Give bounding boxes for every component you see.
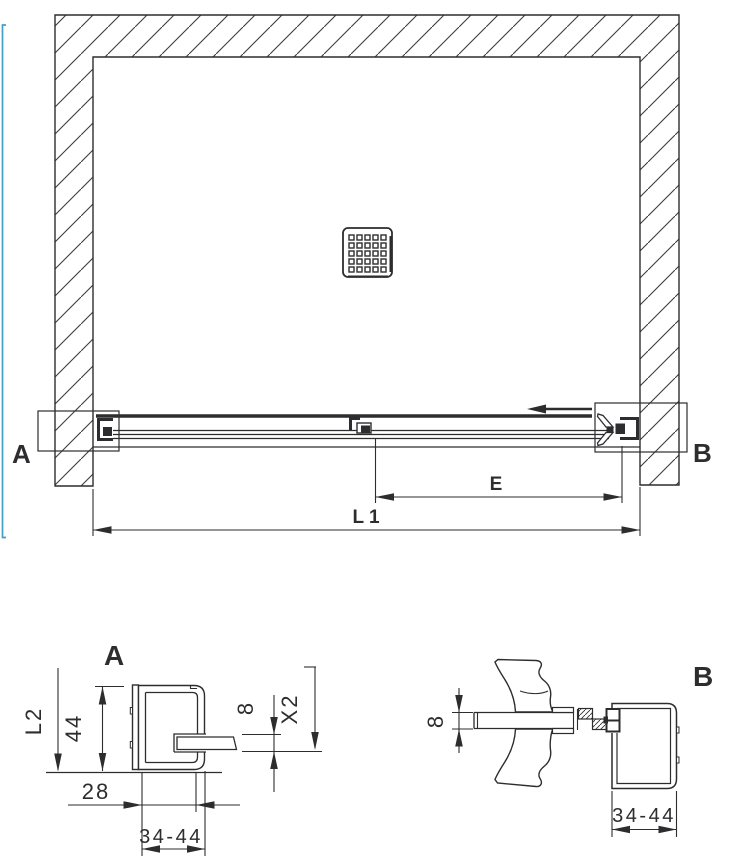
dim-l1-label: L 1 — [352, 507, 380, 528]
dim-x2-label: X2 — [277, 694, 302, 725]
wall-profile-right — [616, 419, 638, 439]
page-frame-fragment — [3, 25, 7, 538]
detail-a-title: A — [104, 640, 124, 671]
drain-holes — [349, 235, 386, 272]
dimension-e: E — [376, 438, 623, 503]
dim-8a-label: 8 — [233, 701, 258, 715]
dimension-l1: L 1 — [93, 487, 640, 536]
dim-28-label: 28 — [82, 779, 110, 804]
dim-e-label: E — [490, 474, 503, 495]
door-knob-plan — [598, 414, 614, 446]
detail-b-title: B — [693, 661, 713, 692]
dim-44-label: 44 — [61, 714, 86, 742]
dimension-44: 44 — [61, 687, 124, 772]
detail-b: B — [423, 660, 713, 838]
dimension-34-44-a: 34-44 — [139, 826, 205, 853]
detail-a-profile — [130, 685, 236, 770]
dimension-x2: X2 — [277, 667, 319, 750]
magnet-seal-strip — [578, 709, 607, 731]
dim-3444a-label: 34-44 — [139, 826, 203, 848]
technical-drawing-page: A B E L 1 A — [0, 0, 729, 866]
wall-profile-left — [99, 420, 114, 440]
detail-a: A L2 44 — [21, 640, 322, 856]
dim-3444b-label: 34-44 — [612, 805, 676, 827]
shower-enclosure-drawing: A B E L 1 A — [0, 0, 729, 866]
drain-grate — [343, 228, 392, 277]
dim-l2-label: L2 — [21, 707, 46, 735]
slide-direction-arrow — [527, 405, 592, 414]
plan-view: A B E L 1 — [12, 15, 712, 536]
sliding-door-assembly — [93, 405, 640, 448]
glass-panel-b — [474, 713, 574, 729]
plan-marker-a: A — [12, 439, 31, 469]
plan-marker-b: B — [693, 438, 712, 468]
glass-panel-a — [177, 737, 237, 750]
dimension-34-44-b: 34-44 — [612, 791, 677, 837]
detail-b-profile — [604, 704, 680, 789]
dim-8b-label: 8 — [423, 714, 448, 728]
dimension-l2: L2 — [21, 668, 62, 772]
dimension-8-b: 8 — [423, 688, 473, 753]
